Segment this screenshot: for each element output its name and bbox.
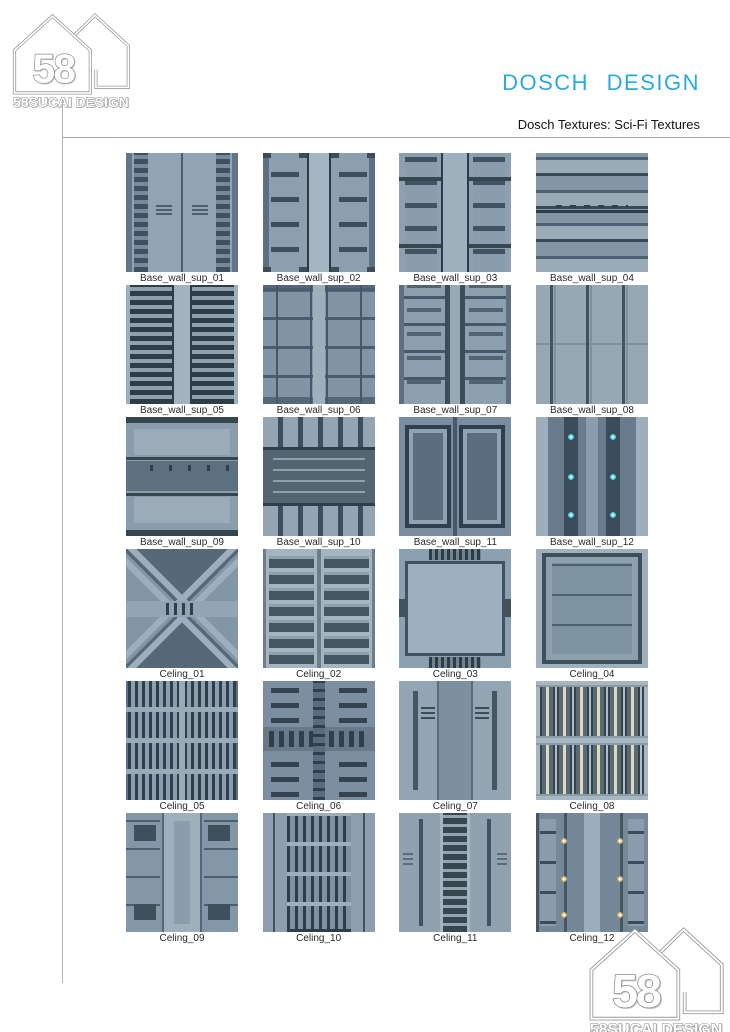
page-title: DOSCH DESIGN <box>502 70 700 96</box>
texture-cell: Base_wall_sup_08 <box>536 285 648 417</box>
texture-thumbnail-celing_11 <box>399 813 511 932</box>
texture-cell: Base_wall_sup_03 <box>399 153 511 285</box>
texture-label: Celing_01 <box>159 668 204 681</box>
texture-thumbnail-celing_08 <box>536 681 648 800</box>
texture-thumbnail-base_wall_sup_03 <box>399 153 511 272</box>
texture-thumbnail-base_wall_sup_12 <box>536 417 648 536</box>
texture-cell: Celing_05 <box>126 681 238 813</box>
texture-thumbnail-celing_02 <box>263 549 375 668</box>
texture-label: Base_wall_sup_04 <box>550 272 634 285</box>
texture-label: Base_wall_sup_09 <box>140 536 224 549</box>
house-58-icon: 58 58 58SUCAI DESIGN 58SUCAI DESIGN <box>8 5 132 110</box>
texture-label: Celing_04 <box>569 668 614 681</box>
texture-thumbnail-celing_01 <box>126 549 238 668</box>
texture-label: Celing_10 <box>296 932 341 945</box>
texture-cell: Celing_06 <box>263 681 375 813</box>
texture-thumbnail-celing_12 <box>536 813 648 932</box>
header-divider-rule <box>62 137 730 138</box>
texture-label: Celing_06 <box>296 800 341 813</box>
texture-cell: Base_wall_sup_06 <box>263 285 375 417</box>
texture-cell: Base_wall_sup_01 <box>126 153 238 285</box>
texture-thumbnail-base_wall_sup_07 <box>399 285 511 404</box>
texture-thumbnail-base_wall_sup_10 <box>263 417 375 536</box>
texture-label: Base_wall_sup_02 <box>277 272 361 285</box>
texture-cell: Celing_11 <box>399 813 511 945</box>
texture-label: Celing_03 <box>433 668 478 681</box>
logo-58sucai-bottom: 58 58 58SUCAI DESIGN 58SUCAI DESIGN <box>584 918 726 1032</box>
texture-label: Base_wall_sup_06 <box>277 404 361 417</box>
texture-cell: Celing_09 <box>126 813 238 945</box>
texture-label: Celing_07 <box>433 800 478 813</box>
texture-cell: Base_wall_sup_04 <box>536 153 648 285</box>
logo-brand-text: 58SUCAI DESIGN <box>13 94 129 110</box>
logo-58-text: 58 <box>33 46 76 92</box>
texture-thumbnail-base_wall_sup_06 <box>263 285 375 404</box>
texture-thumbnail-celing_06 <box>263 681 375 800</box>
texture-thumbnail-base_wall_sup_05 <box>126 285 238 404</box>
texture-thumbnail-base_wall_sup_04 <box>536 153 648 272</box>
texture-thumbnail-base_wall_sup_09 <box>126 417 238 536</box>
texture-label: Base_wall_sup_08 <box>550 404 634 417</box>
logo-58sucai-top: 58 58 58SUCAI DESIGN 58SUCAI DESIGN <box>8 5 132 115</box>
texture-cell: Base_wall_sup_12 <box>536 417 648 549</box>
texture-thumbnail-base_wall_sup_01 <box>126 153 238 272</box>
texture-cell: Base_wall_sup_09 <box>126 417 238 549</box>
texture-label: Base_wall_sup_11 <box>414 536 497 549</box>
texture-label: Celing_11 <box>433 932 477 945</box>
texture-cell: Celing_07 <box>399 681 511 813</box>
texture-cell: Base_wall_sup_10 <box>263 417 375 549</box>
texture-cell: Base_wall_sup_11 <box>399 417 511 549</box>
texture-thumbnail-celing_07 <box>399 681 511 800</box>
texture-cell: Base_wall_sup_02 <box>263 153 375 285</box>
texture-thumbnail-base_wall_sup_08 <box>536 285 648 404</box>
logo-brand-text: 58SUCAI DESIGN <box>590 1022 722 1032</box>
logo-58-text: 58 <box>612 965 661 1017</box>
page-subtitle: Dosch Textures: Sci-Fi Textures <box>518 117 700 132</box>
texture-label: Base_wall_sup_10 <box>277 536 361 549</box>
left-vertical-rule <box>62 99 63 983</box>
texture-label: Base_wall_sup_12 <box>550 536 634 549</box>
texture-label: Celing_09 <box>159 932 204 945</box>
texture-cell: Celing_01 <box>126 549 238 681</box>
texture-label: Celing_05 <box>159 800 204 813</box>
texture-cell: Base_wall_sup_07 <box>399 285 511 417</box>
texture-thumbnail-base_wall_sup_11 <box>399 417 511 536</box>
texture-cell: Celing_03 <box>399 549 511 681</box>
texture-label: Celing_02 <box>296 668 341 681</box>
texture-grid: Base_wall_sup_01Base_wall_sup_02Base_wal… <box>126 153 648 945</box>
texture-cell: Celing_08 <box>536 681 648 813</box>
texture-cell: Celing_10 <box>263 813 375 945</box>
texture-label: Base_wall_sup_01 <box>140 272 224 285</box>
texture-thumbnail-celing_03 <box>399 549 511 668</box>
texture-thumbnail-celing_05 <box>126 681 238 800</box>
house-58-icon: 58 58 58SUCAI DESIGN 58SUCAI DESIGN <box>584 918 726 1032</box>
texture-cell: Celing_04 <box>536 549 648 681</box>
texture-thumbnail-celing_09 <box>126 813 238 932</box>
texture-thumbnail-celing_04 <box>536 549 648 668</box>
catalog-page: 58 58 58SUCAI DESIGN 58SUCAI DESIGN DOSC… <box>0 0 730 1032</box>
texture-cell: Celing_02 <box>263 549 375 681</box>
texture-label: Base_wall_sup_03 <box>413 272 497 285</box>
texture-label: Celing_08 <box>569 800 614 813</box>
texture-thumbnail-base_wall_sup_02 <box>263 153 375 272</box>
texture-label: Base_wall_sup_07 <box>413 404 497 417</box>
texture-cell: Base_wall_sup_05 <box>126 285 238 417</box>
texture-label: Base_wall_sup_05 <box>140 404 224 417</box>
texture-thumbnail-celing_10 <box>263 813 375 932</box>
